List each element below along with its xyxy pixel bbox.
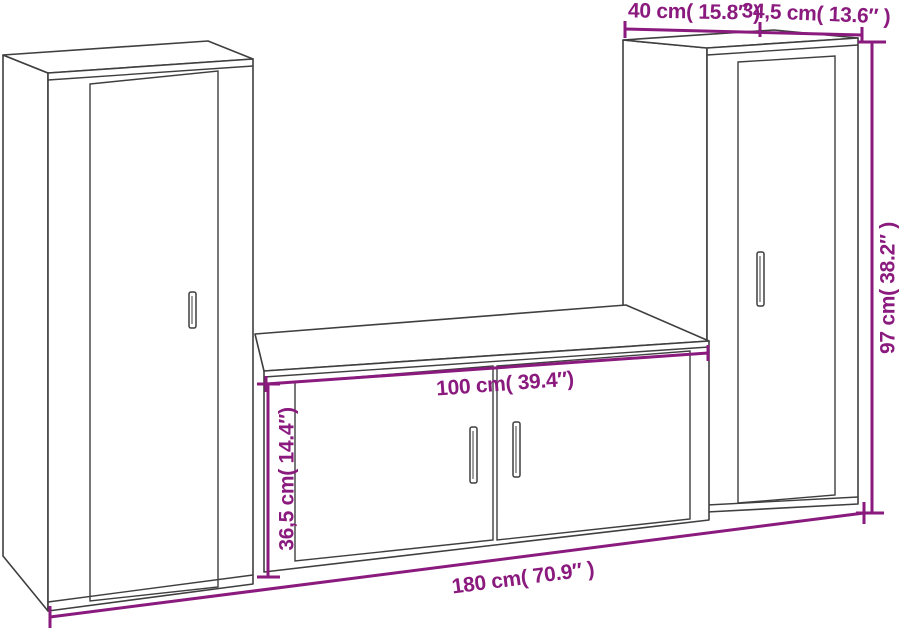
left-tall-cabinet [3, 41, 253, 611]
furniture-dimension-diagram: 40 cm( 15.8″ ) 34,5 cm( 13.6″ ) 97 cm( 3… [0, 0, 900, 631]
cabinet-depth-label: 34,5 cm( 13.6″ ) [741, 0, 891, 29]
right-cabinet-side-panel [623, 40, 707, 341]
left-cabinet-side-panel [3, 55, 48, 611]
cabinet-height-label: 97 cm( 38.2″ ) [877, 222, 900, 354]
center-tv-bench [255, 305, 709, 572]
dimension-cabinet-height: 97 cm( 38.2″ ) [856, 42, 900, 513]
left-cabinet-front-face [48, 59, 253, 611]
bench-height-label: 36,5 cm( 14.4″) [276, 407, 299, 550]
